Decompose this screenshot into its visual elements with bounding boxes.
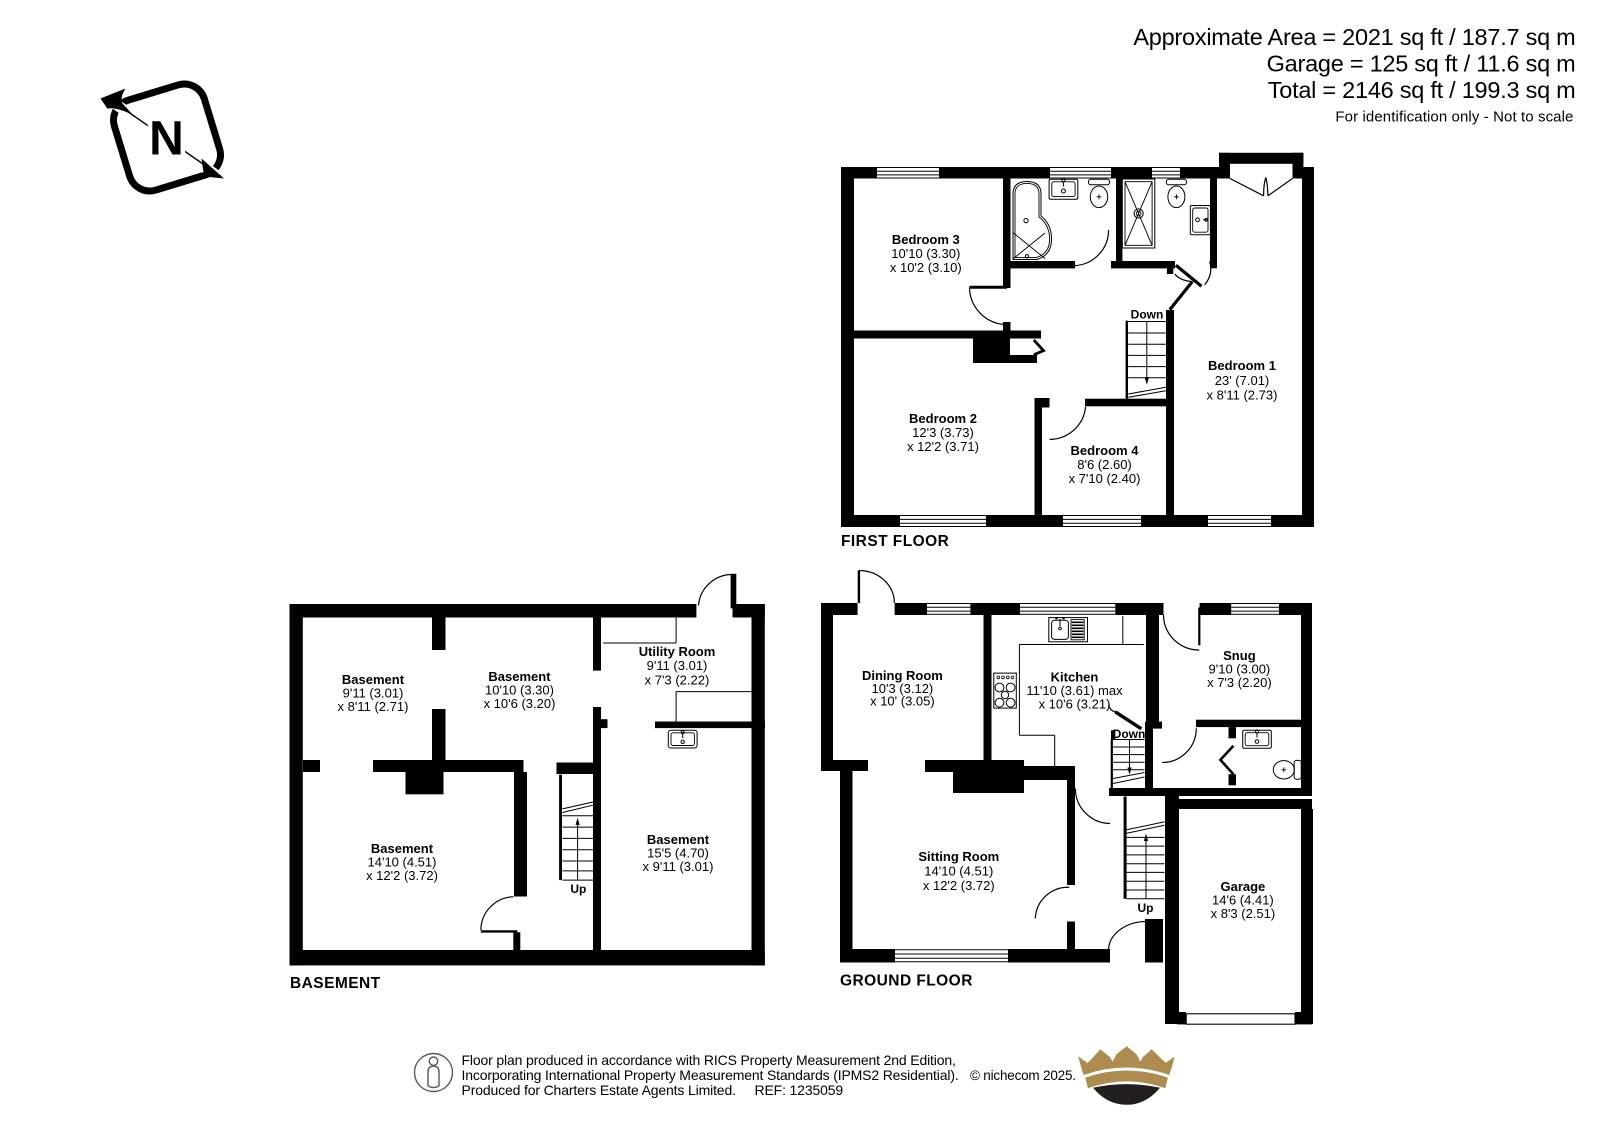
svg-text:FIRST FLOOR: FIRST FLOOR [841, 533, 949, 550]
svg-text:Bedroom 2: Bedroom 2 [909, 411, 977, 426]
svg-text:Utility Room: Utility Room [639, 644, 716, 659]
svg-text:14'10 (4.51): 14'10 (4.51) [924, 863, 993, 878]
svg-text:Down: Down [1131, 308, 1164, 322]
svg-text:x 12'2 (3.72): x 12'2 (3.72) [366, 868, 438, 883]
svg-text:x 10'6 (3.21): x 10'6 (3.21) [1039, 697, 1111, 712]
svg-text:8'6 (2.60): 8'6 (2.60) [1077, 457, 1132, 472]
svg-text:Up: Up [1138, 901, 1154, 915]
svg-text:Up: Up [570, 882, 586, 896]
svg-text:x 7'10 (2.40): x 7'10 (2.40) [1069, 471, 1141, 486]
svg-text:Sitting Room: Sitting Room [918, 849, 999, 864]
svg-text:Floor plan produced in accorda: Floor plan produced in accordance with R… [462, 1052, 956, 1068]
svg-text:x 7'3 (2.20): x 7'3 (2.20) [1207, 675, 1272, 690]
svg-text:BASEMENT: BASEMENT [290, 975, 381, 992]
svg-text:23' (7.01): 23' (7.01) [1215, 373, 1270, 388]
svg-text:© nichecom 2025.: © nichecom 2025. [970, 1068, 1076, 1083]
svg-text:x 8'11 (2.71): x 8'11 (2.71) [338, 699, 409, 714]
svg-text:For identification only - Not: For identification only - Not to scale [1335, 109, 1573, 126]
svg-text:Garage = 125 sq ft / 11.6 sq m: Garage = 125 sq ft / 11.6 sq m [1267, 51, 1576, 77]
svg-text:x 10'2 (3.10): x 10'2 (3.10) [890, 260, 962, 275]
svg-text:x 8'11 (2.73): x 8'11 (2.73) [1207, 387, 1278, 402]
svg-text:12'3 (3.73): 12'3 (3.73) [912, 425, 974, 440]
svg-text:GROUND FLOOR: GROUND FLOOR [840, 973, 973, 990]
svg-text:x 7'3 (2.22): x 7'3 (2.22) [645, 673, 710, 688]
svg-text:Approximate Area = 2021 sq ft: Approximate Area = 2021 sq ft / 187.7 sq… [1133, 24, 1575, 50]
svg-text:Bedroom 1: Bedroom 1 [1208, 358, 1276, 373]
svg-text:x 10' (3.05): x 10' (3.05) [870, 694, 935, 709]
svg-text:10'10 (3.30): 10'10 (3.30) [891, 246, 960, 261]
svg-text:Down: Down [1113, 727, 1146, 741]
svg-text:Bedroom 4: Bedroom 4 [1071, 443, 1140, 458]
svg-text:Total = 2146 sq ft / 199.3 sq: Total = 2146 sq ft / 199.3 sq m [1268, 77, 1576, 103]
svg-text:x 12'2 (3.72): x 12'2 (3.72) [923, 878, 995, 893]
svg-text:x 9'11 (3.01): x 9'11 (3.01) [643, 859, 714, 874]
svg-text:Bedroom 3: Bedroom 3 [892, 232, 960, 247]
svg-text:x 12'2 (3.71): x 12'2 (3.71) [907, 439, 979, 454]
svg-text:x 10'6 (3.20): x 10'6 (3.20) [484, 696, 556, 711]
svg-text:9'11 (3.01): 9'11 (3.01) [647, 658, 708, 673]
svg-text:x 8'3 (2.51): x 8'3 (2.51) [1211, 906, 1276, 921]
svg-text:Incorporating International Pr: Incorporating International Property Mea… [462, 1067, 959, 1083]
svg-text:N: N [149, 113, 184, 166]
svg-text:Produced for Charters Estate A: Produced for Charters Estate Agents Limi… [462, 1082, 844, 1098]
